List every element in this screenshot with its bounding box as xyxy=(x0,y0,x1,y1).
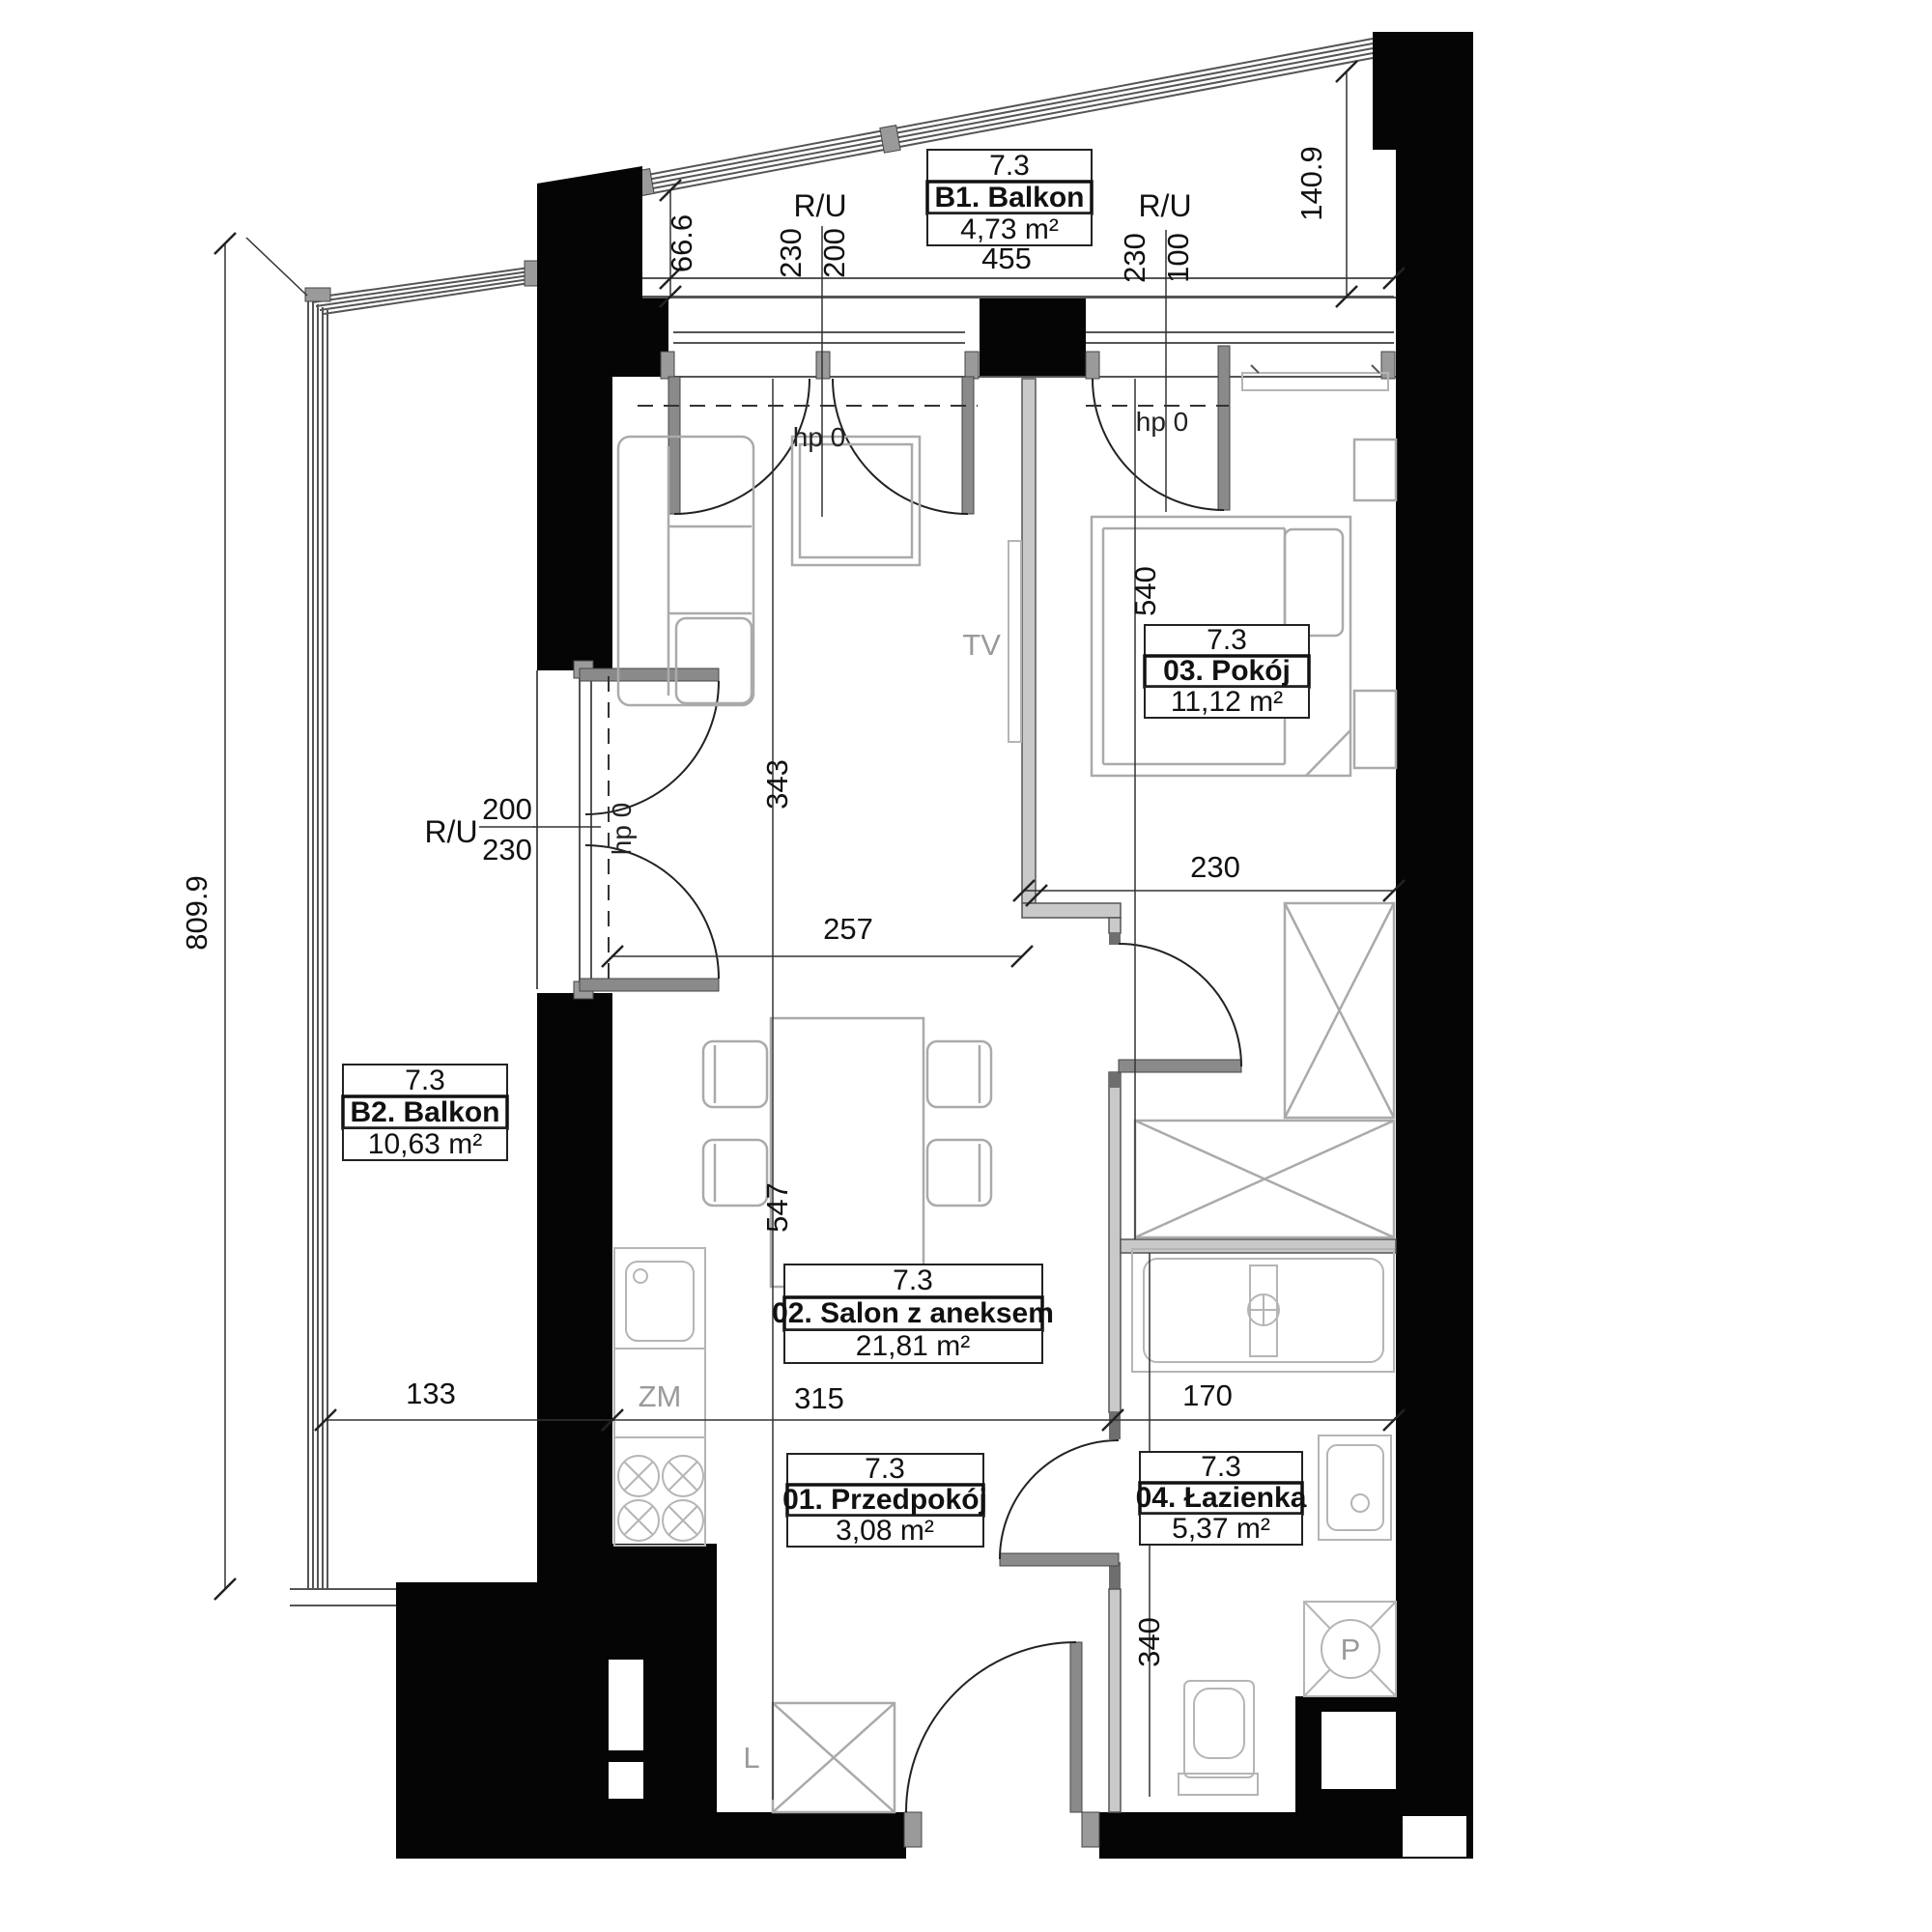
tv xyxy=(1009,541,1021,742)
ru-100: 100 xyxy=(1161,233,1195,283)
hall-wardrobe xyxy=(773,1703,895,1812)
room-label-przedpokoj: 7.3 01. Przedpokój 3,08 m² xyxy=(782,1453,987,1547)
room-area: 10,63 m² xyxy=(368,1128,482,1160)
room-label-b2: 7.3 B2. Balkon 10,63 m² xyxy=(343,1065,507,1160)
balcony-b2-railing xyxy=(246,238,540,1605)
window-label-left: R/U 200 230 xyxy=(424,792,535,867)
wardrobe-wide xyxy=(1135,1121,1394,1237)
room-label-lazienka: 7.3 04. Łazienka 5,37 m² xyxy=(1136,1451,1307,1545)
room-area: 5,37 m² xyxy=(1172,1513,1270,1545)
window-jamb xyxy=(816,352,830,379)
wall-left-lower xyxy=(537,993,612,1544)
balcony-b1-slab-edge xyxy=(642,278,1394,297)
room-unit: 7.3 xyxy=(405,1065,445,1096)
wall-top-between-openings xyxy=(980,298,1086,377)
washer-label: P xyxy=(1341,1633,1361,1666)
sofa xyxy=(618,437,753,705)
room-unit: 7.3 xyxy=(1201,1451,1241,1483)
door-leaf xyxy=(1119,1060,1241,1072)
wall-shaft-bottom-left xyxy=(396,1544,717,1859)
zm-label: ZM xyxy=(639,1379,682,1413)
window-jamb xyxy=(965,352,979,379)
tv-label: TV xyxy=(962,628,1001,662)
window-label-top-left: R/U 200 230 xyxy=(774,188,851,280)
door-leaf xyxy=(580,979,719,991)
partition-bedroom-bath xyxy=(1121,1239,1396,1253)
stove xyxy=(618,1456,703,1541)
wall-top-left xyxy=(537,166,668,670)
bathroom-sink xyxy=(1319,1435,1391,1540)
partition-jog xyxy=(1022,903,1121,918)
room-unit: 7.3 xyxy=(865,1453,905,1485)
room-unit: 7.3 xyxy=(989,150,1030,182)
dim-340: 340 xyxy=(1132,1617,1166,1667)
room-name: 01. Przedpokój xyxy=(782,1484,987,1516)
ru-230: 230 xyxy=(482,833,532,867)
ru-label: R/U xyxy=(1138,188,1191,223)
dim-809-9: 809.9 xyxy=(180,875,213,951)
room-name: 04. Łazienka xyxy=(1136,1482,1307,1514)
room-area: 21,81 m² xyxy=(856,1330,970,1362)
dim-540: 540 xyxy=(1128,566,1162,616)
window-jamb xyxy=(1086,352,1099,379)
room-unit: 7.3 xyxy=(1207,624,1247,656)
floor-plan: P 455 66.6 140.9 80 xyxy=(0,0,1932,1932)
room-label-salon: 7.3 02. Salon z aneksem 21,81 m² xyxy=(772,1264,1054,1363)
door-leaf xyxy=(1000,1553,1119,1566)
partition-corridor-bath xyxy=(1109,1072,1121,1412)
wall-bottom-right-band xyxy=(1099,1812,1399,1859)
dim-170: 170 xyxy=(1182,1378,1233,1412)
dim-140-9: 140.9 xyxy=(1294,146,1328,221)
washing-machine: P xyxy=(1304,1602,1396,1696)
wall-bottom-left-band xyxy=(717,1812,906,1859)
ru-label: R/U xyxy=(424,814,477,849)
door-leaf xyxy=(1070,1642,1082,1812)
bedroom-window-sill xyxy=(1242,373,1388,390)
ru-200: 200 xyxy=(817,228,851,278)
partition-salon-bedroom xyxy=(1022,379,1036,903)
partition-hall-bath xyxy=(1109,1589,1121,1812)
dim-547: 547 xyxy=(760,1182,794,1233)
dining-table-set xyxy=(703,1018,991,1287)
nightstand xyxy=(1354,691,1396,768)
entrance-door xyxy=(904,1642,1099,1847)
pillow xyxy=(1285,529,1343,636)
l-label: L xyxy=(743,1741,759,1775)
dim-315: 315 xyxy=(794,1381,844,1415)
room-area: 3,08 m² xyxy=(836,1515,934,1547)
floor-plan-canvas: P 455 66.6 140.9 80 xyxy=(0,0,1932,1932)
dim-230-room: 230 xyxy=(1190,850,1240,884)
room-unit: 7.3 xyxy=(893,1264,933,1296)
bathtub xyxy=(1132,1249,1394,1372)
room-label-pokoj: 7.3 03. Pokój 11,12 m² xyxy=(1145,624,1309,718)
window-label-top-right: R/U 100 230 xyxy=(1118,188,1195,286)
door-leaf xyxy=(1218,346,1230,510)
wardrobe-tall xyxy=(1285,903,1394,1118)
dim-343: 343 xyxy=(760,759,794,810)
dim-455: 455 xyxy=(981,241,1032,275)
interior-partitions xyxy=(1022,379,1396,1812)
bathroom-door xyxy=(1000,1440,1119,1566)
ru-label: R/U xyxy=(793,188,846,223)
dimension-texts: 455 66.6 140.9 809.9 343 547 257 230 540… xyxy=(180,146,1328,1667)
room-name: 02. Salon z aneksem xyxy=(772,1297,1054,1329)
room-area: 11,12 m² xyxy=(1171,686,1283,718)
dim-133: 133 xyxy=(406,1377,456,1410)
hp0-salon: hp 0 xyxy=(793,422,846,452)
kitchen-sink xyxy=(626,1262,694,1341)
ru-230: 230 xyxy=(1118,233,1151,283)
ru-230: 230 xyxy=(774,228,808,278)
exterior-walls xyxy=(396,32,1473,1859)
window-jamb xyxy=(661,352,674,379)
door-leaf xyxy=(580,668,719,681)
bedroom-entry-door xyxy=(1119,944,1241,1072)
hp0-b2: hp 0 xyxy=(607,803,637,856)
room-name: B2. Balkon xyxy=(350,1096,499,1128)
room-name: 03. Pokój xyxy=(1163,655,1291,687)
room-name: B1. Balkon xyxy=(934,182,1084,213)
faucet xyxy=(634,1269,647,1283)
dim-257: 257 xyxy=(823,912,873,946)
room-label-b1: 7.3 B1. Balkon 4,73 m² xyxy=(927,150,1092,245)
hp0-bedroom: hp 0 xyxy=(1136,407,1189,437)
door-leaf xyxy=(962,377,974,514)
nightstand xyxy=(1354,440,1396,500)
door-leaf xyxy=(668,377,680,514)
wall-right xyxy=(1373,32,1473,1859)
toilet xyxy=(1179,1681,1258,1795)
room-area: 4,73 m² xyxy=(960,213,1059,245)
dim-66-6: 66.6 xyxy=(665,214,698,272)
ru-200: 200 xyxy=(482,792,532,826)
